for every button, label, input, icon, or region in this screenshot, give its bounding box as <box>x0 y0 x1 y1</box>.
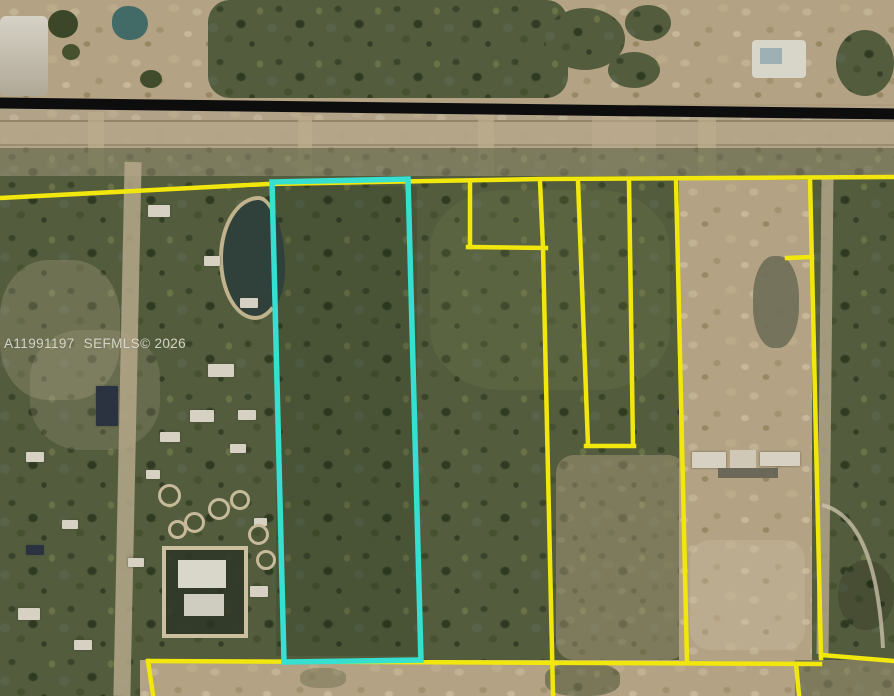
scrub-patch <box>556 455 686 660</box>
house-roof <box>128 558 144 567</box>
tree <box>62 44 80 60</box>
dark-structure <box>96 386 118 426</box>
road-surface <box>0 120 894 146</box>
tree-cluster <box>300 668 346 688</box>
round-lot <box>168 520 187 539</box>
house-roof <box>190 410 214 422</box>
house-roof <box>240 298 258 308</box>
tree-cluster <box>625 5 671 41</box>
house-roof <box>230 444 246 453</box>
house-roof <box>204 256 220 266</box>
compound-building <box>184 594 224 616</box>
round-lot <box>208 498 230 520</box>
house-roof <box>208 364 234 377</box>
walled-compound <box>162 546 248 638</box>
highlight-parcel-interior-shade <box>276 186 417 656</box>
house-roof <box>62 520 78 529</box>
round-lot <box>248 524 269 545</box>
mls-watermark: A11991197SEFMLS©2026 <box>4 336 186 351</box>
cleared-parcel-dark-patch <box>753 256 799 348</box>
round-lot <box>158 484 181 507</box>
tree-cluster <box>208 0 568 98</box>
round-lot <box>256 550 276 570</box>
equipment-structure <box>692 452 726 468</box>
building-top-right-roof <box>760 48 782 64</box>
round-lot <box>230 490 250 510</box>
tree <box>48 10 78 38</box>
house-roof <box>146 470 160 479</box>
cleared-parcel-light-patch <box>690 540 805 650</box>
aerial-map[interactable]: A11991197SEFMLS©2026 <box>0 0 894 696</box>
house-roof <box>148 205 170 217</box>
tree-cluster <box>836 30 894 96</box>
house-roof <box>26 452 44 462</box>
tree-cluster <box>795 660 894 696</box>
mls-source: SEFMLS© <box>84 336 151 351</box>
mls-number: A11991197 <box>4 336 75 351</box>
house-roof <box>250 586 268 597</box>
house-roof <box>74 640 92 650</box>
pond-top <box>112 6 148 40</box>
compound-building <box>178 560 226 588</box>
dark-structure <box>26 545 44 555</box>
tree-cluster <box>545 663 620 696</box>
tree-cluster <box>608 52 660 88</box>
houses-top-left <box>0 16 48 96</box>
vegetation-light-patch <box>430 190 670 390</box>
tree-cluster <box>838 560 894 630</box>
round-lot <box>184 512 205 533</box>
mls-year: 2026 <box>154 336 186 351</box>
equipment-structure <box>730 450 756 470</box>
house-roof <box>238 410 256 420</box>
field-bottom-strip <box>140 660 894 696</box>
equipment-shadow <box>718 468 778 478</box>
house-roof <box>160 432 180 442</box>
house-roof <box>18 608 40 620</box>
equipment-structure <box>760 452 800 466</box>
tree <box>140 70 162 88</box>
